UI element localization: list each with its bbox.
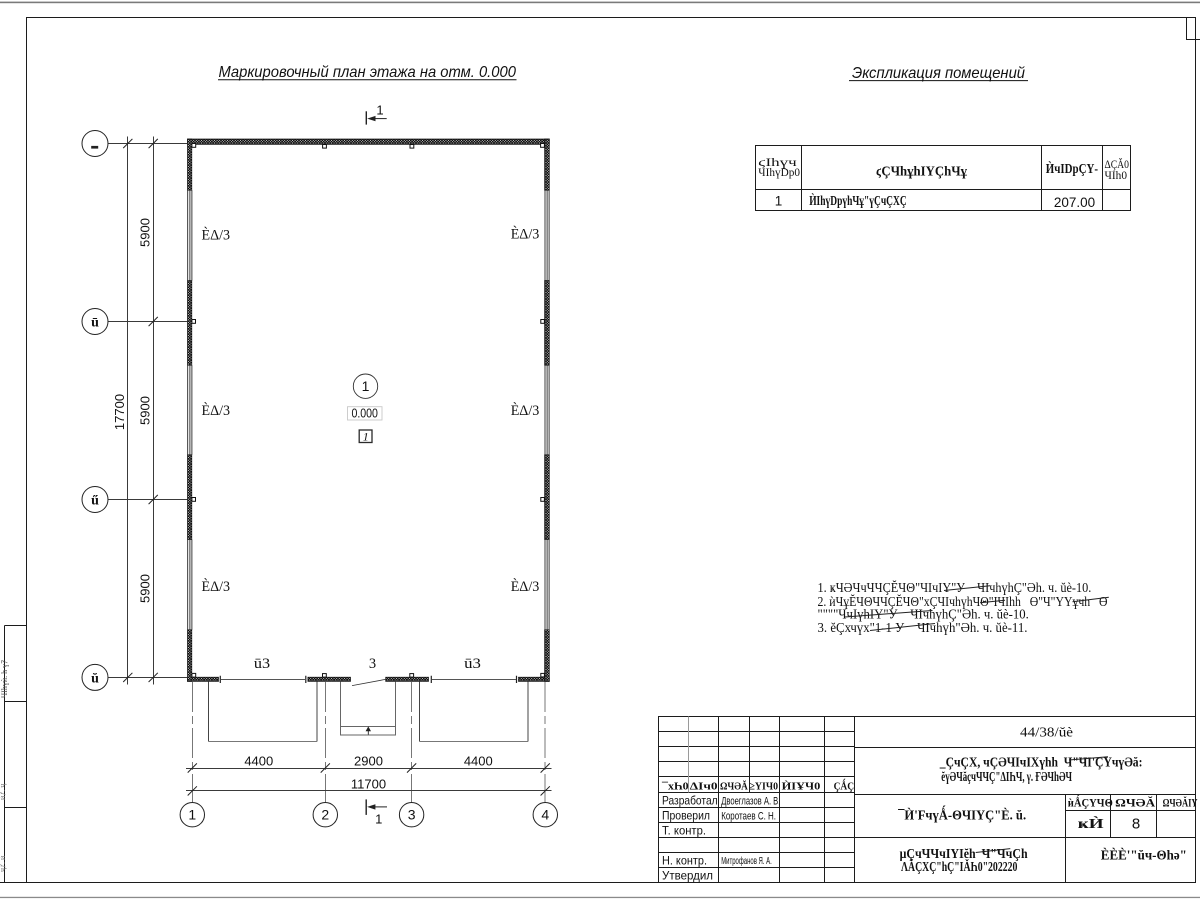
svg-text:ū: ū xyxy=(91,316,99,331)
svg-text:207.00: 207.00 xyxy=(1054,195,1095,210)
svg-text:4400: 4400 xyxy=(244,753,273,768)
svg-text:17700: 17700 xyxy=(112,394,127,430)
svg-text:5900: 5900 xyxy=(138,218,153,247)
svg-text:1. ҝЧӘЧчЧЧÇĔЧΘ"ЧIчIY"У ЧIчһ: 1. ҝЧӘЧчЧЧÇĔЧΘ"ЧIчIY"У ЧIчһүһÇ"Әh. ч. ŭè… xyxy=(818,580,1092,595)
svg-text:11700: 11700 xyxy=(351,777,386,792)
svg-text:44/38/ŭè: 44/38/ŭè xyxy=(1020,725,1073,740)
svg-text:3: 3 xyxy=(369,656,376,672)
svg-text:ΩЧƏĂ: ΩЧƏĂ xyxy=(1115,796,1155,810)
svg-text:ЍчIDpÇҮ-: ЍчIDpÇҮ- xyxy=(1046,160,1098,177)
svg-text:Митрофанов Я. А.: Митрофанов Я. А. xyxy=(721,855,772,867)
svg-text:5900: 5900 xyxy=(138,574,153,603)
svg-text:2900: 2900 xyxy=(354,753,383,768)
svg-text:ΛǍÇXÇ"hÇ"IǍҺ0"202220: ΛǍÇXÇ"hÇ"IǍҺ0"202220 xyxy=(901,859,1018,874)
svg-text:ÈΔ/3: ÈΔ/3 xyxy=(202,402,231,419)
svg-text:3. ĕÇхчүх"1-1 У ЧIчһүһ"Әh.: 3. ĕÇхчүх"1-1 У ЧIчһүһ"Әh. ч. ŭè-11. xyxy=(818,620,1028,635)
svg-text:Т. контр.: Т. контр. xyxy=(662,823,706,837)
svg-text:2: 2 xyxy=(321,807,329,823)
svg-text:ҝЍ: ҝЍ xyxy=(1078,816,1105,831)
svg-text:5900: 5900 xyxy=(138,396,153,425)
svg-text:Коротаев С. Н.: Коротаев С. Н. xyxy=(721,810,776,822)
svg-text:ЍIһүDpүhЧұ"үÇчÇXÇ: ЍIһүDpүhЧұ"үÇчÇXÇ xyxy=(809,192,907,209)
svg-text:1: 1 xyxy=(363,429,369,443)
svg-text:ϛÇЧһұhIҮÇhЧұ: ϛÇЧһұhIҮÇhЧұ xyxy=(876,165,967,180)
svg-text:ÈΔ/3: ÈΔ/3 xyxy=(202,578,231,595)
svg-text:4: 4 xyxy=(541,807,549,823)
svg-text:0.000: 0.000 xyxy=(351,406,378,420)
svg-text:ЧIһүDp0: ЧIһүDp0 xyxy=(758,165,800,179)
svg-text:ÈΔ/3: ÈΔ/3 xyxy=(511,402,540,419)
svg-text:≥YIЧ0: ≥YIЧ0 xyxy=(750,780,779,792)
svg-text:ѝǺÇҮЧΘ: ѝǺÇҮЧΘ xyxy=(1068,794,1113,810)
svg-text:3: 3 xyxy=(408,807,416,823)
svg-text:1: 1 xyxy=(376,103,383,118)
svg-text:ѝｱ. ҷ: ѝｱ. ҷ xyxy=(0,784,7,800)
svg-text:ŭ: ŭ xyxy=(91,671,99,686)
svg-text:1: 1 xyxy=(362,378,370,394)
svg-text:ЧIһүѝ. һ үｱ: ЧIһүѝ. һ үｱ xyxy=(0,660,9,698)
svg-text:8: 8 xyxy=(1132,815,1140,832)
svg-text:ÈΔ/3: ÈΔ/3 xyxy=(511,226,540,243)
svg-text:ĕүƏЧăçчЧЧÇ"ΔIҺЧ, γ. ҒƏЧһƏЧ: ĕүƏЧăçчЧЧÇ"ΔIҺЧ, γ. ҒƏЧһƏЧ xyxy=(941,770,1072,785)
svg-text:ű: ű xyxy=(91,494,99,509)
svg-text:Н. контр.: Н. контр. xyxy=(662,853,707,867)
svg-text:ΔIч0: ΔIч0 xyxy=(690,780,718,792)
svg-text:Маркировочный план этажа на от: Маркировочный план этажа на отм. 0.000 xyxy=(218,64,516,81)
svg-text:1: 1 xyxy=(188,807,196,823)
svg-text:ΩЧƏĂIY: ΩЧƏĂIY xyxy=(1163,796,1198,810)
svg-text:ΩЧƏĂ: ΩЧƏĂ xyxy=(720,780,748,792)
svg-text:Разработал: Разработал xyxy=(662,793,718,807)
svg-text:ЍIҰЧ0: ЍIҰЧ0 xyxy=(782,780,821,792)
svg-text:Проверил: Проверил xyxy=(662,808,710,822)
svg-text:1: 1 xyxy=(775,194,783,209)
svg-text:ÈΔ/3: ÈΔ/3 xyxy=(202,226,231,243)
svg-text:ÈΔ/3: ÈΔ/3 xyxy=(511,578,540,595)
svg-text:ū3: ū3 xyxy=(464,656,481,672)
svg-text:_ÇчÇX, чÇƏЧIчIXүһһ Ч"ЧI'ÇҮчүƏ: _ÇчÇX, чÇƏЧIчIXүһһ Ч"ЧI'ÇҮчүƏă: xyxy=(939,756,1143,771)
svg-text:4400: 4400 xyxy=(464,753,493,768)
svg-text:Утвердил: Утвердил xyxy=(662,869,713,883)
svg-text:ū3: ū3 xyxy=(254,656,270,672)
svg-text:¯Ѝ'FчүǺ-ΘЧIҮÇ"È. ŭ.: ¯Ѝ'FчүǺ-ΘЧIҮÇ"È. ŭ. xyxy=(897,804,1026,823)
svg-text:Двоеглазов А. В.: Двоеглазов А. В. xyxy=(721,795,780,807)
svg-text:ЧIһ0: ЧIһ0 xyxy=(1105,168,1128,182)
svg-text:Экспликация помещений: Экспликация помещений xyxy=(852,65,1025,82)
svg-text:ÈÈÈ'"ŭч-Θһə": ÈÈÈ'"ŭч-Θһə" xyxy=(1101,847,1187,864)
svg-text:1: 1 xyxy=(375,812,382,827)
svg-text:ÇǺÇ: ÇǺÇ xyxy=(834,778,855,792)
svg-text:¯хҺ0: ¯хҺ0 xyxy=(661,780,689,792)
svg-text:ҷｱ. ѝ: ҷｱ. ѝ xyxy=(0,855,7,872)
